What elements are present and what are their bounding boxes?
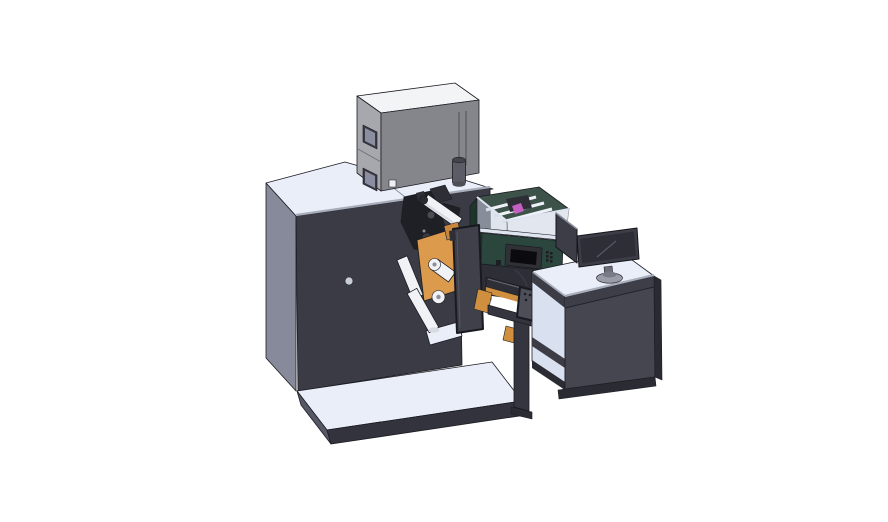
mechanism-knob	[428, 212, 435, 219]
cylinder-base	[453, 181, 466, 187]
roller-stub-hub	[433, 263, 437, 267]
frame-leg	[514, 321, 529, 411]
machine-render-svg	[0, 0, 888, 522]
door-hinge-tab	[449, 230, 456, 241]
mechanism-dot	[423, 230, 426, 233]
pendant-button	[529, 294, 532, 297]
machine-left-face	[266, 183, 296, 391]
pendant-button	[524, 293, 527, 296]
hmi-button	[550, 252, 553, 255]
exhaust-cylinder	[453, 157, 466, 187]
hmi-switch	[496, 260, 501, 265]
hmi-button	[546, 259, 549, 262]
cad-viewport	[0, 0, 888, 522]
monitor-base-hub	[603, 272, 617, 278]
hmi-button	[550, 260, 553, 263]
hmi-button	[546, 255, 549, 258]
pendant-button	[525, 299, 528, 302]
cylinder-body	[453, 160, 466, 184]
operator-desk	[532, 252, 662, 399]
desk-right-edge	[654, 276, 662, 380]
guide-roller-end-cap	[419, 196, 427, 204]
roller-lower-cap	[429, 327, 439, 332]
cylinder-cap	[453, 157, 466, 163]
front-port-circle	[345, 277, 353, 285]
roller-end-hub	[436, 295, 440, 299]
hmi-button	[546, 251, 549, 254]
hmi-button	[550, 256, 553, 259]
cabinet-label-square	[389, 180, 396, 187]
